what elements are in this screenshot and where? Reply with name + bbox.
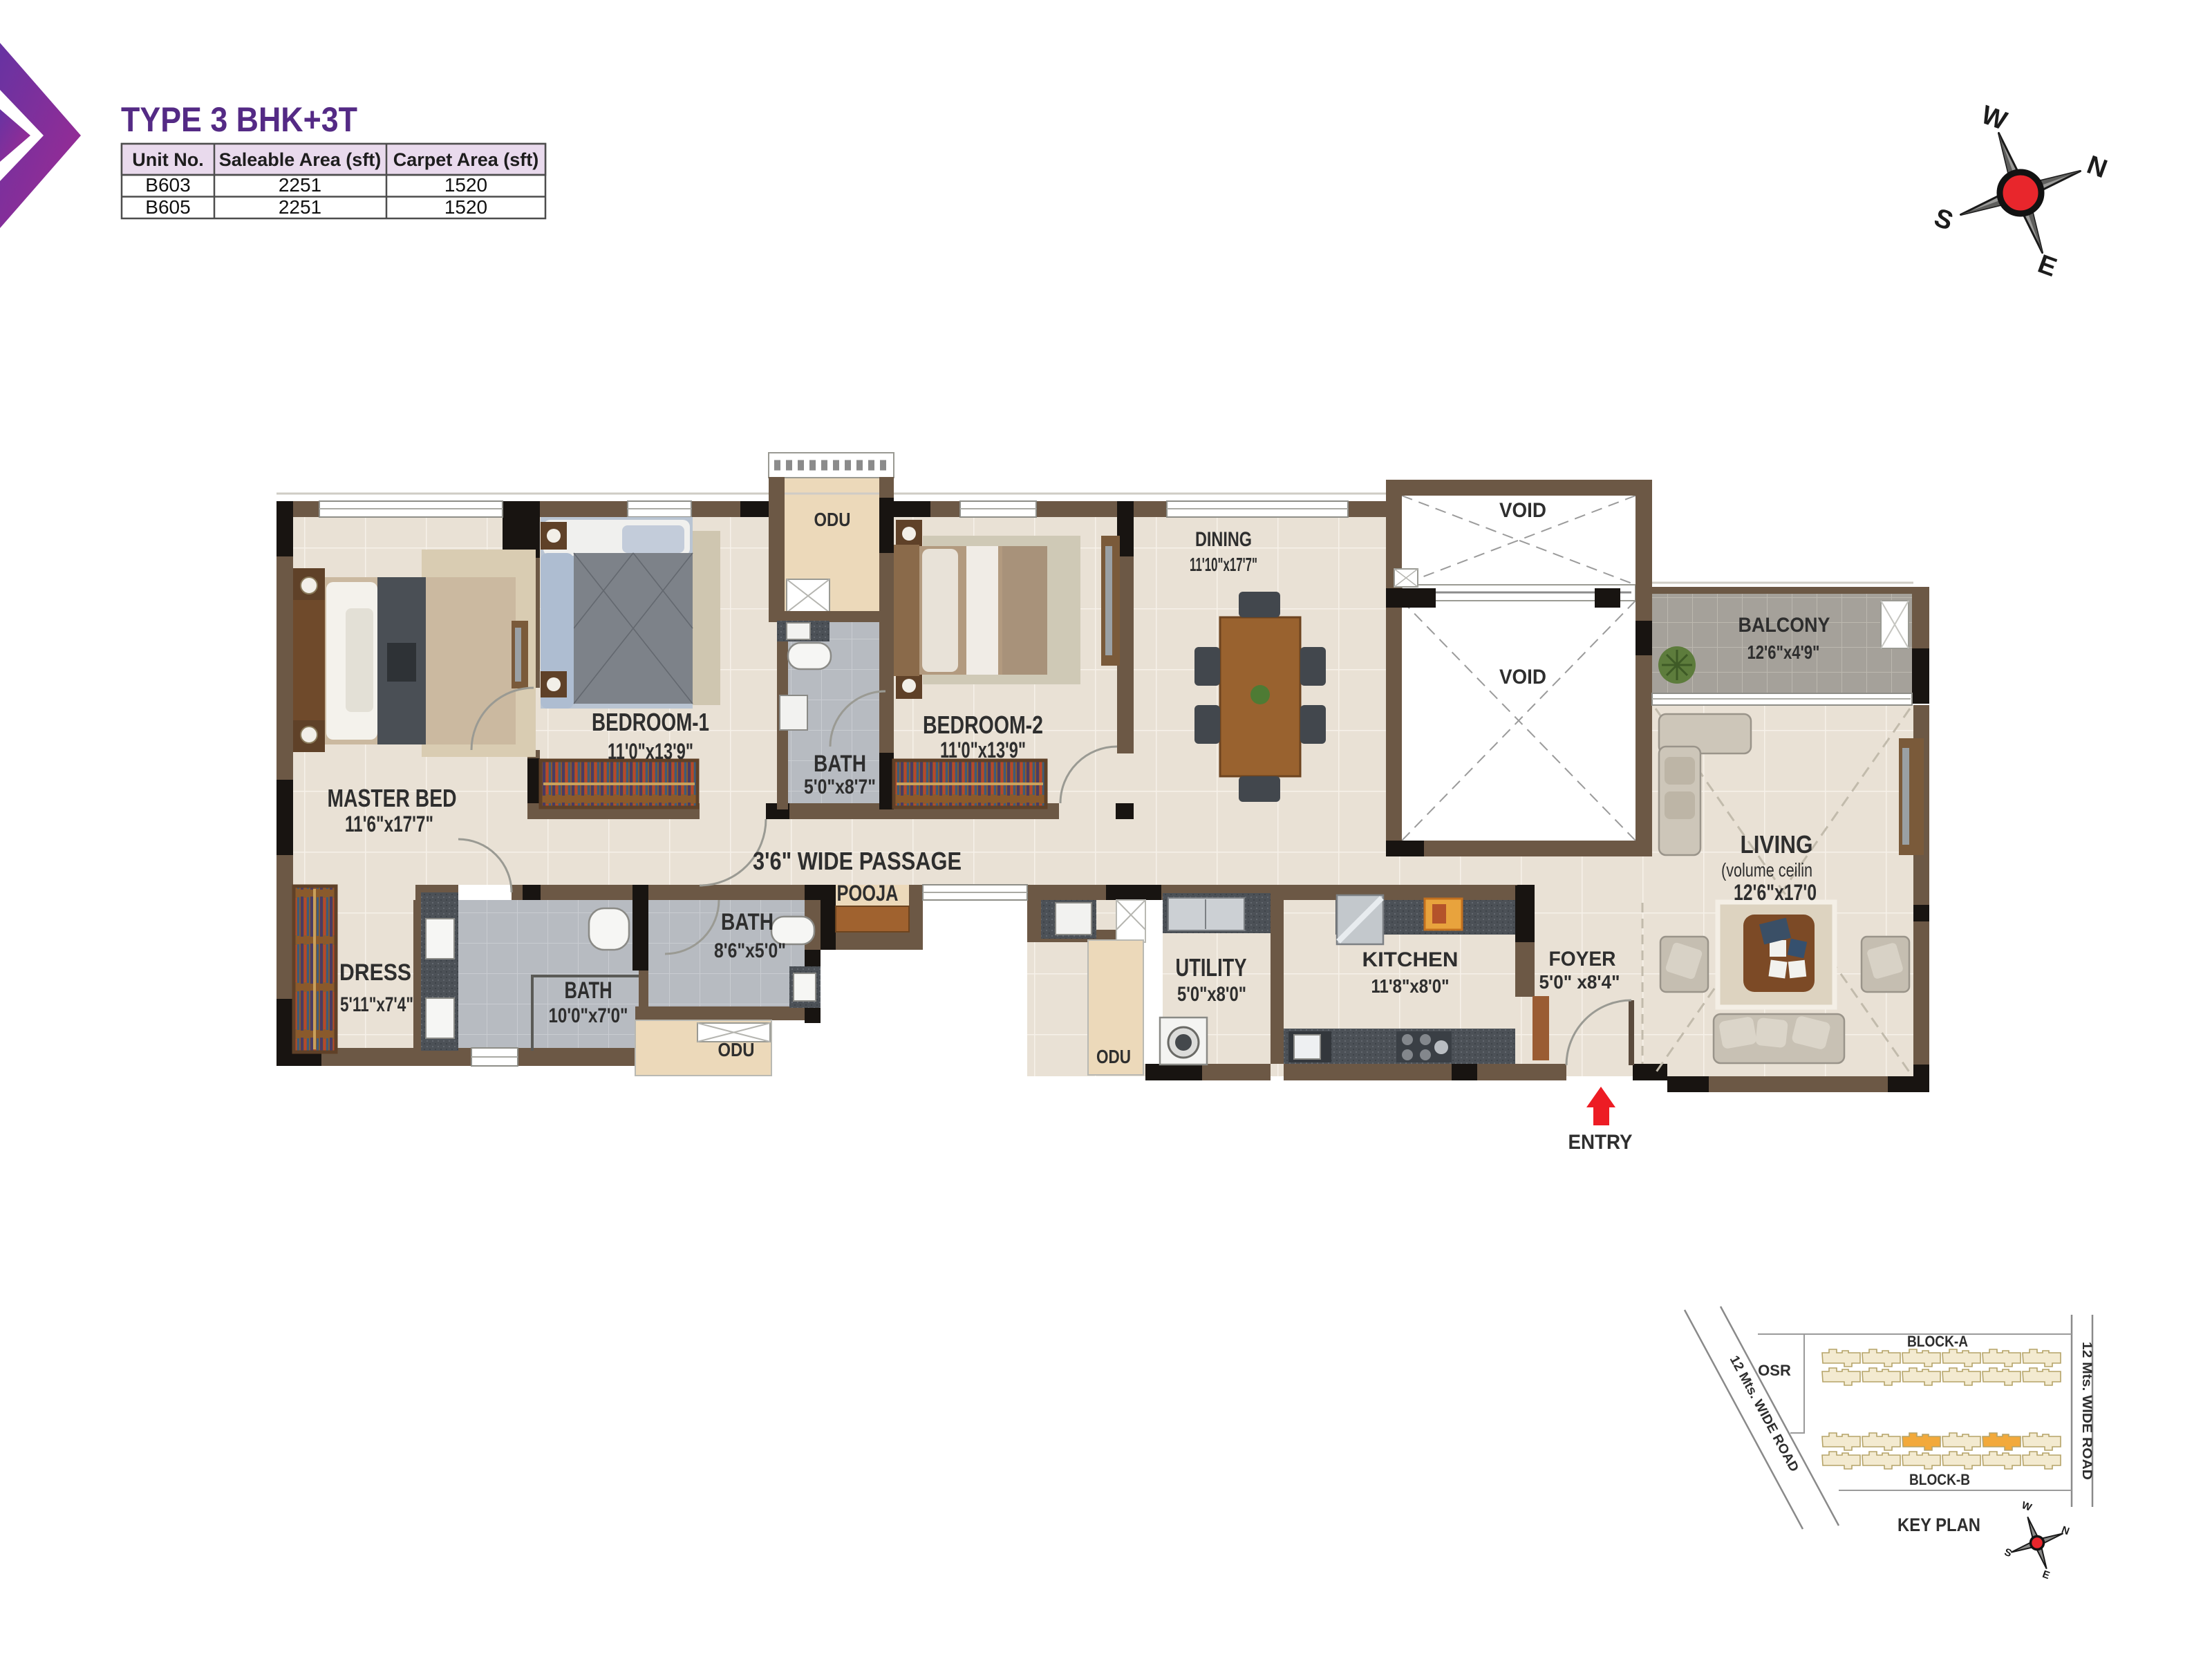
svg-text:5'11"x7'4": 5'11"x7'4" (340, 993, 413, 1016)
svg-text:11'0"x13'9": 11'0"x13'9" (608, 739, 693, 764)
svg-text:5'0"x8'7": 5'0"x8'7" (804, 776, 876, 798)
svg-text:VOID: VOID (1499, 666, 1546, 688)
svg-text:1520: 1520 (444, 196, 487, 218)
svg-text:8'6"x5'0": 8'6"x5'0" (714, 939, 786, 962)
svg-text:ODU: ODU (718, 1039, 755, 1060)
svg-text:TYPE 3 BHK+3T: TYPE 3 BHK+3T (121, 100, 357, 139)
svg-text:LIVING: LIVING (1741, 830, 1813, 859)
svg-text:12'6"x4'9": 12'6"x4'9" (1747, 641, 1820, 663)
svg-text:B605: B605 (145, 196, 190, 218)
svg-text:ODU: ODU (814, 509, 851, 530)
svg-text:B603: B603 (145, 174, 190, 196)
svg-text:OSR: OSR (1758, 1362, 1791, 1379)
svg-text:12 Mts. WIDE ROAD: 12 Mts. WIDE ROAD (2079, 1342, 2094, 1480)
svg-text:2251: 2251 (279, 196, 321, 218)
svg-text:KEY PLAN: KEY PLAN (1897, 1515, 1980, 1535)
svg-text:Unit No.: Unit No. (132, 149, 203, 170)
svg-text:12'6"x17'0: 12'6"x17'0 (1734, 880, 1817, 905)
svg-text:11'0"x13'9": 11'0"x13'9" (940, 738, 1026, 762)
svg-text:BEDROOM-1: BEDROOM-1 (592, 708, 709, 736)
svg-text:11'8"x8'0": 11'8"x8'0" (1371, 975, 1450, 997)
svg-text:1520: 1520 (444, 174, 487, 196)
svg-text:Carpet Area (sft): Carpet Area (sft) (393, 149, 539, 170)
svg-text:BALCONY: BALCONY (1738, 614, 1830, 637)
svg-text:11'10"x17'7": 11'10"x17'7" (1190, 554, 1257, 575)
svg-text:10'0"x7'0": 10'0"x7'0" (549, 1004, 628, 1027)
svg-text:5'0"x8'0": 5'0"x8'0" (1177, 983, 1246, 1006)
svg-text:Saleable Area (sft): Saleable Area (sft) (219, 149, 382, 170)
svg-text:BLOCK-B: BLOCK-B (1909, 1471, 1970, 1488)
svg-text:(volume ceilin: (volume ceilin (1721, 859, 1812, 881)
svg-text:5'0" x8'4": 5'0" x8'4" (1539, 971, 1620, 993)
svg-text:3'6" WIDE PASSAGE: 3'6" WIDE PASSAGE (753, 847, 962, 875)
svg-text:BATH: BATH (814, 751, 866, 777)
svg-text:2251: 2251 (279, 174, 321, 196)
svg-text:BEDROOM-2: BEDROOM-2 (923, 711, 1043, 739)
svg-text:DRESS: DRESS (339, 959, 411, 986)
svg-text:DINING: DINING (1195, 528, 1252, 551)
svg-text:FOYER: FOYER (1549, 948, 1616, 971)
svg-text:ODU: ODU (1096, 1046, 1131, 1067)
svg-text:ENTRY: ENTRY (1568, 1131, 1633, 1154)
svg-text:BLOCK-A: BLOCK-A (1907, 1333, 1968, 1350)
svg-text:MASTER BED: MASTER BED (328, 784, 457, 812)
svg-text:KITCHEN: KITCHEN (1362, 948, 1459, 971)
svg-text:UTILITY: UTILITY (1176, 953, 1247, 982)
svg-text:VOID: VOID (1499, 499, 1546, 522)
svg-text:BATH: BATH (565, 977, 612, 1004)
svg-text:POOJA: POOJA (837, 881, 899, 906)
svg-text:BATH: BATH (721, 909, 774, 935)
svg-text:11'6"x17'7": 11'6"x17'7" (345, 812, 433, 836)
